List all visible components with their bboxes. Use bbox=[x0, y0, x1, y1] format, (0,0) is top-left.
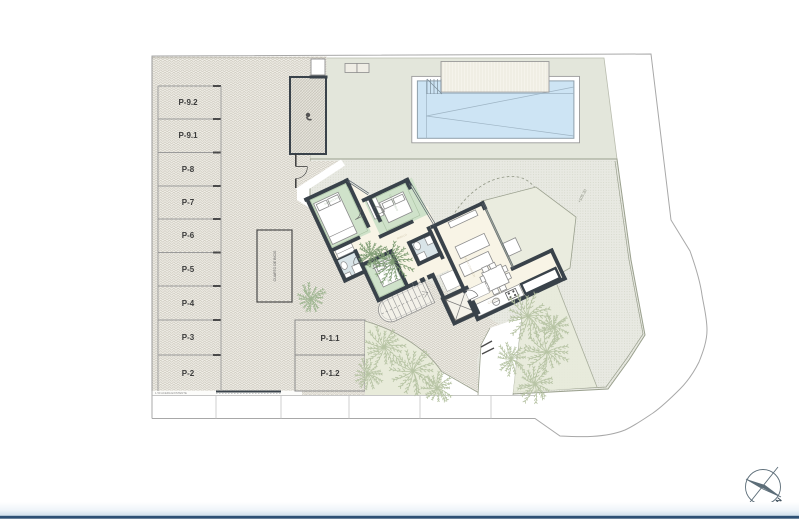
svg-text:1.50 ACERA EXISTENTE: 1.50 ACERA EXISTENTE bbox=[155, 391, 187, 395]
svg-text:CUARTO DE BICIS: CUARTO DE BICIS bbox=[273, 250, 277, 281]
svg-text:P-6: P-6 bbox=[182, 231, 195, 240]
svg-text:P-5: P-5 bbox=[182, 265, 195, 274]
svg-text:P-4: P-4 bbox=[182, 299, 195, 308]
svg-text:P-9.1: P-9.1 bbox=[178, 131, 198, 140]
svg-text:P-3: P-3 bbox=[182, 333, 195, 342]
svg-text:P-8: P-8 bbox=[182, 165, 195, 174]
svg-text:P-1.2: P-1.2 bbox=[320, 369, 340, 378]
svg-text:P-2: P-2 bbox=[182, 369, 195, 378]
svg-text:P-7: P-7 bbox=[182, 198, 195, 207]
svg-text:P-9.2: P-9.2 bbox=[178, 98, 198, 107]
svg-text:P-1.1: P-1.1 bbox=[320, 334, 340, 343]
